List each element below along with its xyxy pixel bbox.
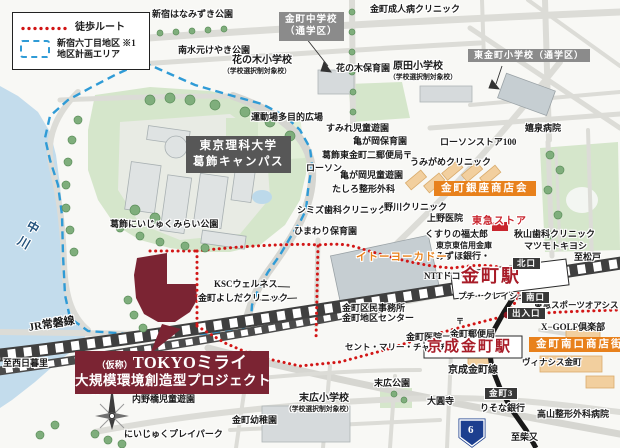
label-resona-bank: りそな銀行 xyxy=(480,404,525,413)
label-suehiro-elementary: 末広小学校 xyxy=(299,394,349,405)
label-vinacis-kanamachi: ヴィナシス金町 xyxy=(522,358,582,367)
label-kanamachi-seijinbyo-clinic: 金町成人病クリニック xyxy=(370,5,460,14)
label-playfield-plaza: 運動場多目的広場 xyxy=(251,113,323,122)
label-tashiro-orthopedics: たしろ整形外科 xyxy=(332,185,395,194)
label-petit-creche: プチ・クレイシュ xyxy=(458,292,526,301)
label-north-exit: 北口 xyxy=(512,257,541,270)
label-keisei-kanamachi-line: 京成金町線 xyxy=(448,366,498,377)
project-title-line1: （仮称）TOKYOミライ xyxy=(75,354,269,373)
label-lawson: ローソン xyxy=(306,164,342,173)
walk-route-sample-icon xyxy=(20,26,68,31)
label-akiyama-dental: 秋山歯科クリニック xyxy=(514,230,595,239)
district-plan-label: 新宿六丁目地区 ※1 地区計画エリア xyxy=(57,38,136,61)
label-matsumotokiyoshi: マツモトキヨシ xyxy=(524,242,587,251)
label-xgolf-club: X−GOLF倶楽部 xyxy=(541,323,605,332)
label-to-shibamata: 至柴又 xyxy=(511,433,538,442)
label-ito-yokado: イトーヨーカドー xyxy=(356,252,448,263)
label-daienji-temple: 大圓寺 xyxy=(427,397,454,406)
label-shimizu-dental: シミズ歯科クリニック xyxy=(297,206,387,215)
label-himawari-nursery: ひまわり保育園 xyxy=(294,227,357,236)
school-zone-higashikanamachi: 東金町小学校（通学区） xyxy=(468,49,590,62)
label-district-center: 金町地区センター xyxy=(342,314,414,323)
label-niijuku-mirai-park: 葛飾にいじゅくみらい公園 xyxy=(110,220,218,229)
label-suehiro-park: 末広公園 xyxy=(374,379,410,388)
label-fukutaro-drugstore: くすりの福太郎 xyxy=(425,230,488,239)
label-school-choice-note: （学校選択制対象校） xyxy=(223,68,291,75)
label-tokyu-store: 東急ストア xyxy=(472,217,527,228)
walk-route-label: 徒歩ルート xyxy=(75,22,125,35)
label-hananoki-elementary: 花の木小学校 xyxy=(232,56,292,67)
map-legend: 徒歩ルート 新宿六丁目地区 ※1 地区計画エリア xyxy=(12,12,150,70)
label-tokyo-higashi-shinkin: 東京東信用金庫 xyxy=(436,242,492,250)
label-ueno-clinic: 上野医院 xyxy=(427,214,463,223)
label-uchinobashi-playground: 内野橋児童遊園 xyxy=(132,395,195,404)
label-yoshida-clinic: 金町よしだクリニック xyxy=(198,294,288,303)
label-nakagawa-river: 中川 xyxy=(12,218,41,255)
label-takayama-orthopedics: 高山整形外科病院 xyxy=(537,410,609,419)
label-kamegaoka-playground: 亀が岡児童遊園 xyxy=(340,171,403,180)
label-kanamachi-ginza-shotenkai: 金町銀座商店会 xyxy=(434,181,536,196)
label-harada-elementary: 原田小学校 xyxy=(393,62,443,73)
label-niijuku-playpark: にいじゅくプレイパーク xyxy=(124,430,223,439)
label-ksc-wellness: KSCウェルネス xyxy=(214,280,278,289)
label-nogawa-clinic: 野川クリニック xyxy=(384,203,447,212)
label-umigame-clinic: うみがめクリニック xyxy=(410,158,491,167)
label-hananoki-nursery: 花の木保育園 xyxy=(336,64,390,73)
post-mark: 〒 xyxy=(456,318,464,326)
label-kamegaoka-nursery: 亀が岡保育園 xyxy=(353,137,407,146)
label-minamiguchi-shotengai: 金町南口商店街 xyxy=(529,337,620,352)
label-post-office: 葛飾東金町二郵便局〒 xyxy=(322,151,412,160)
label-kanamachi-kindergarten: 金町幼稚園 xyxy=(232,416,277,425)
label-school-choice-note: （学校選択制対象校） xyxy=(389,74,457,81)
area-map: 徒歩ルート 新宿六丁目地区 ※1 地区計画エリア 東京理科大学 葛飾キャンパス … xyxy=(0,0,620,448)
label-to-nishinippori: 至西日暮里 xyxy=(3,359,48,368)
label-to-matsudo: 至松戸 xyxy=(574,253,601,262)
project-title-line2: 大規模環境創造型プロジェクト xyxy=(75,373,269,389)
label-jr-joban-line: JR常磐線 xyxy=(28,316,76,335)
label-south-exit: 南口 xyxy=(521,291,550,304)
label-kanamachi-3-intersection: 金町3 xyxy=(484,387,518,400)
district-plan-sample-icon xyxy=(20,40,50,58)
label-sumire-playground: すみれ児童遊園 xyxy=(326,124,389,133)
project-title-box: （仮称）TOKYOミライ 大規模環境創造型プロジェクト xyxy=(75,351,269,394)
label-shinjuku-hanamizuki-park: 新宿はなみずき公園 xyxy=(152,10,233,19)
label-school-choice-note: （学校選択制対象校） xyxy=(285,406,353,413)
label-keisei-kanamachi-station: 京成金町駅 xyxy=(427,340,512,356)
label-route-6: 6 xyxy=(468,425,474,437)
label-lawson-store-100: ローソンストア100 xyxy=(440,138,516,147)
label-kisen-hospital: 嬉泉病院 xyxy=(525,124,561,133)
label-entrance: 出入口 xyxy=(507,307,546,320)
